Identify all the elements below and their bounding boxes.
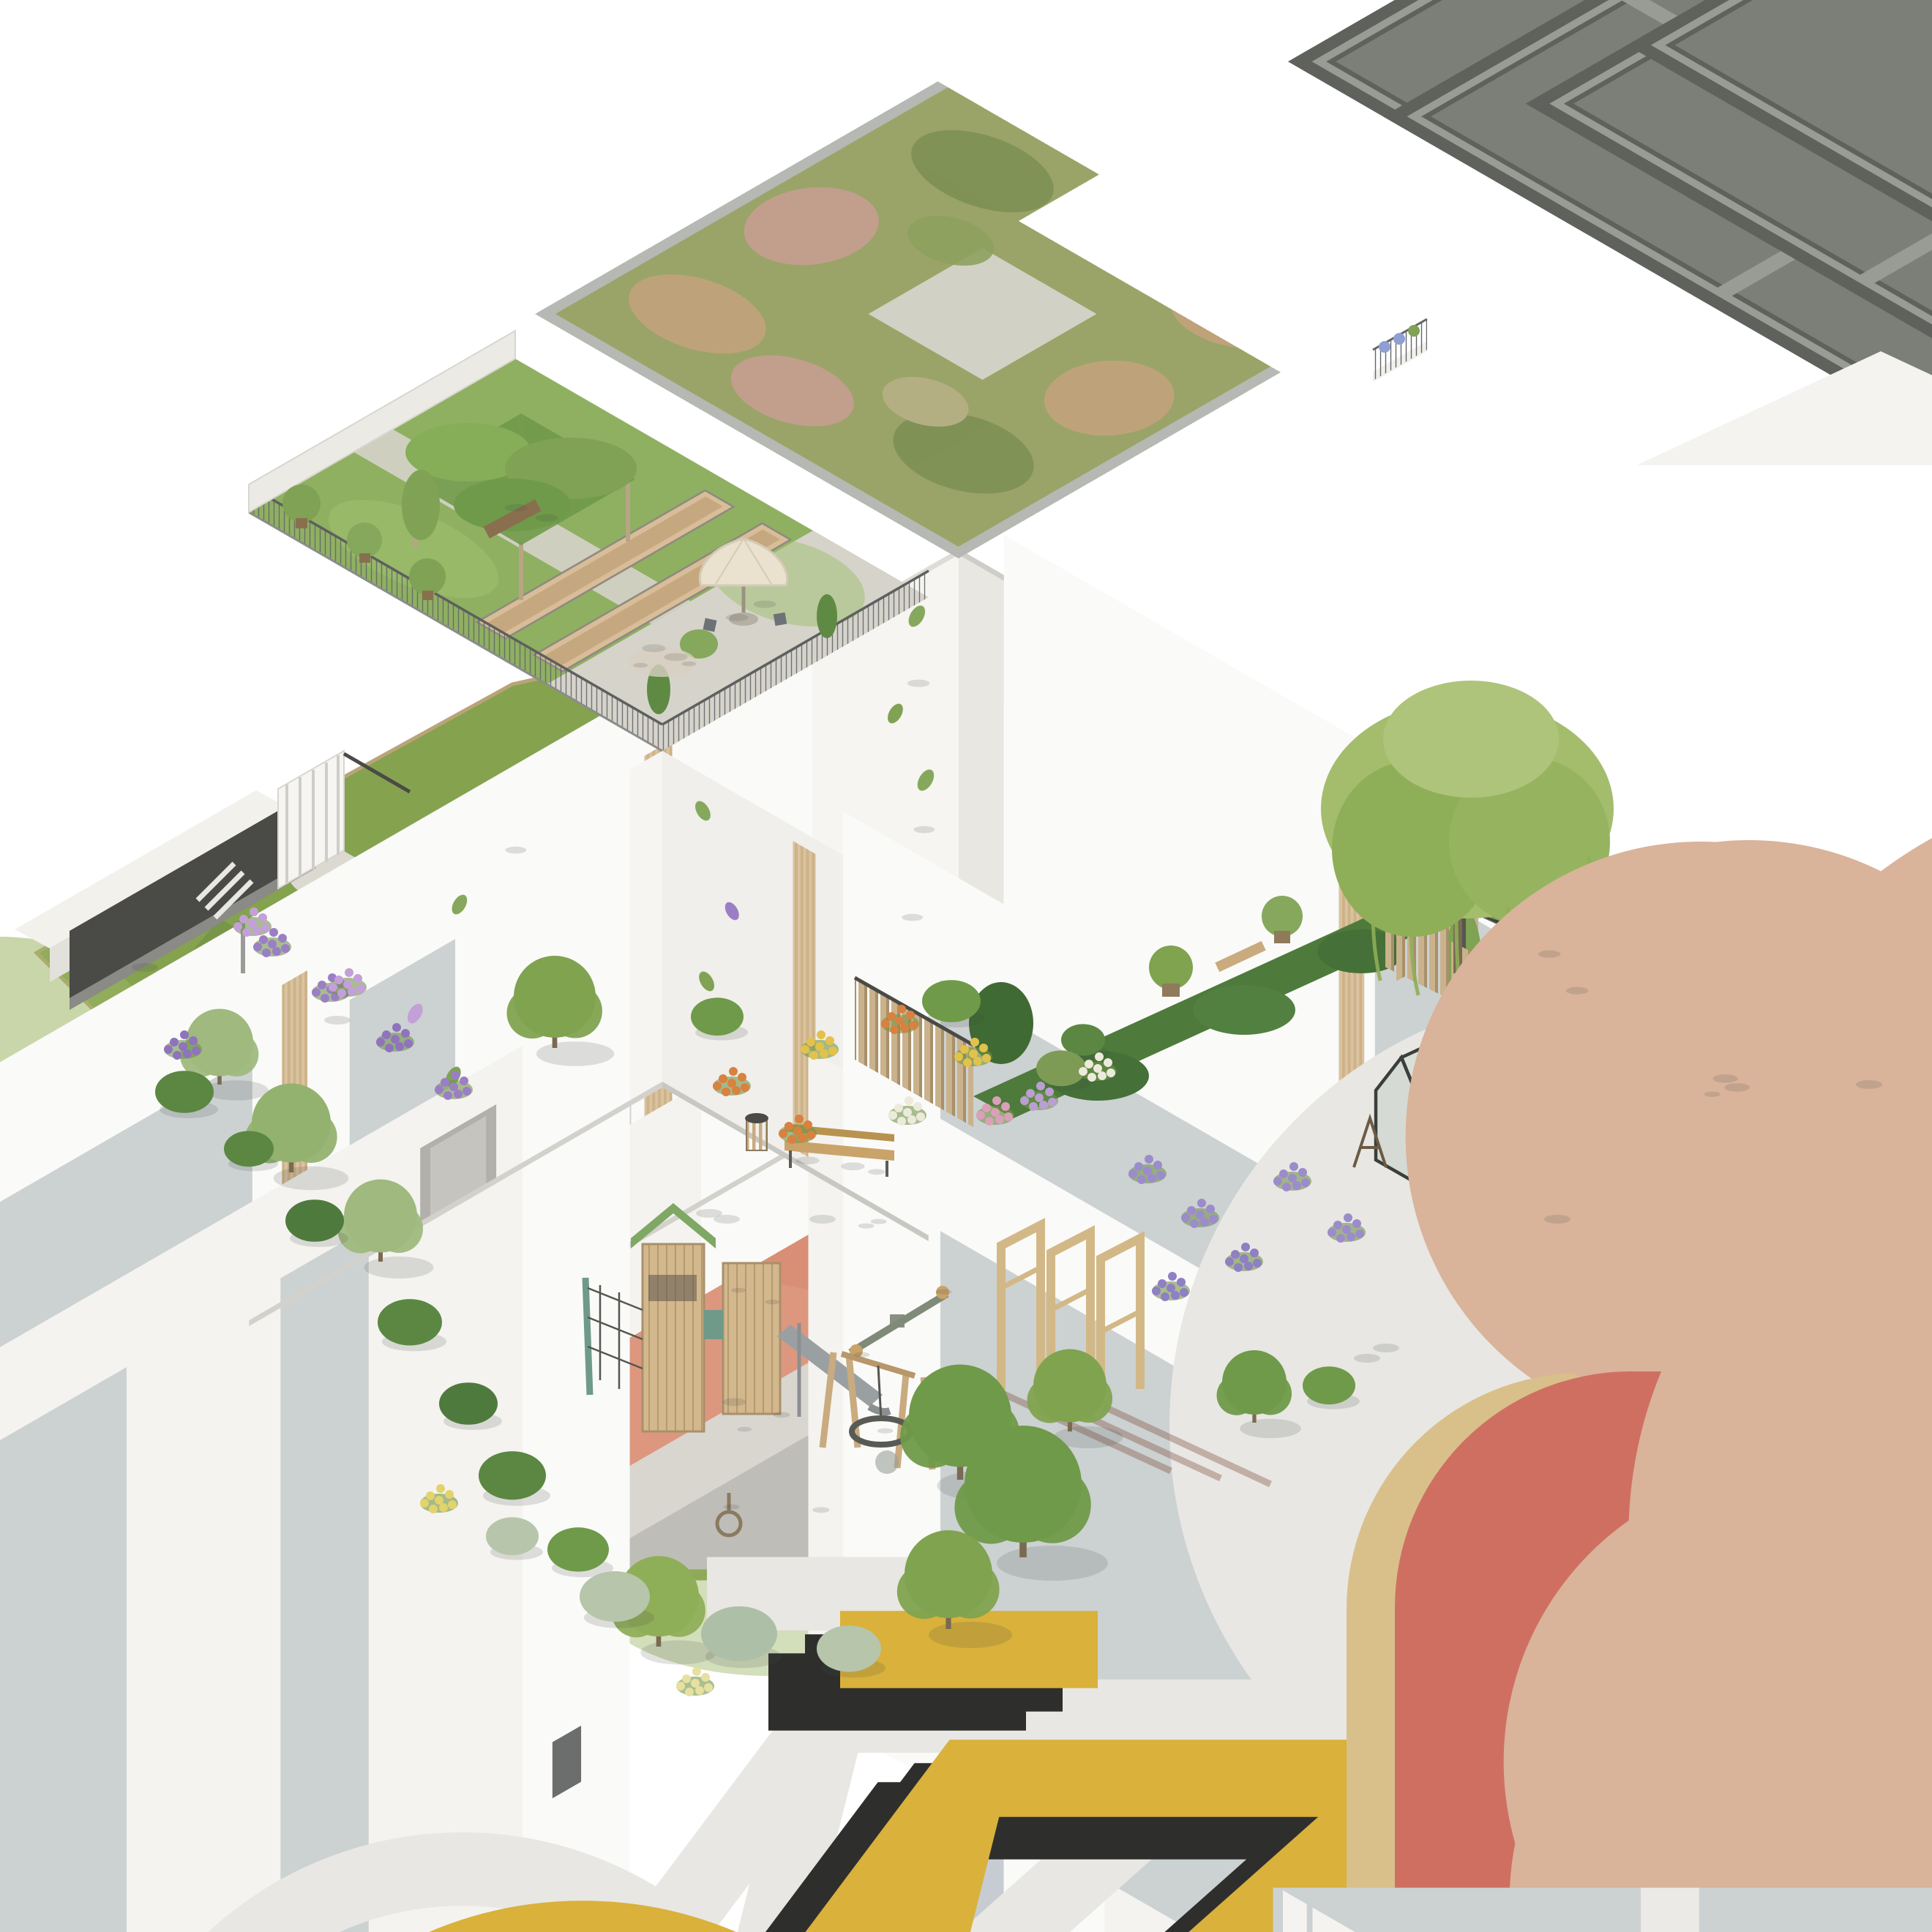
climb-net-post: [585, 1278, 590, 1395]
spinner-bowl: [875, 1450, 899, 1474]
tower-window: [648, 1275, 697, 1301]
axonometric-scene: [0, 0, 1932, 1932]
rendering-canvas: [0, 0, 1932, 1932]
